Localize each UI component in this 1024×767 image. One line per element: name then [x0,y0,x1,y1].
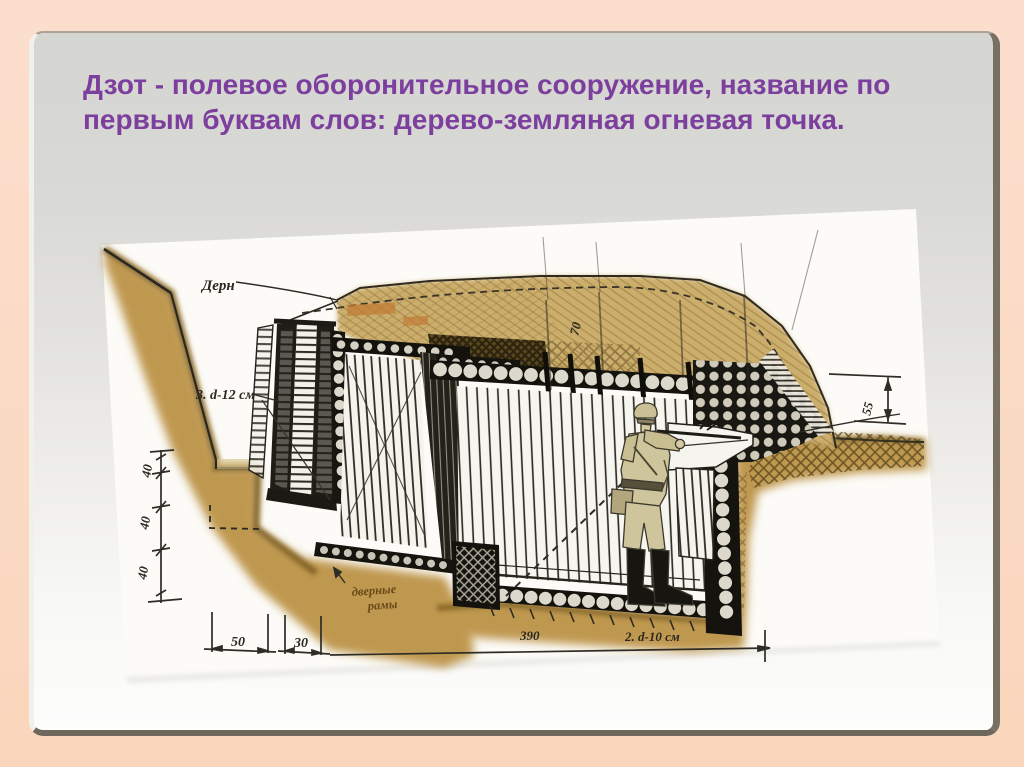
svg-text:3. d-12 см: 3. d-12 см [195,388,255,403]
svg-text:Дерн: Дерн [200,278,235,294]
svg-text:50: 50 [231,635,245,650]
svg-text:рамы: рамы [366,597,398,613]
svg-text:390: 390 [519,628,540,643]
svg-text:2. d-10 см: 2. d-10 см [624,629,680,644]
svg-text:30: 30 [293,636,308,651]
